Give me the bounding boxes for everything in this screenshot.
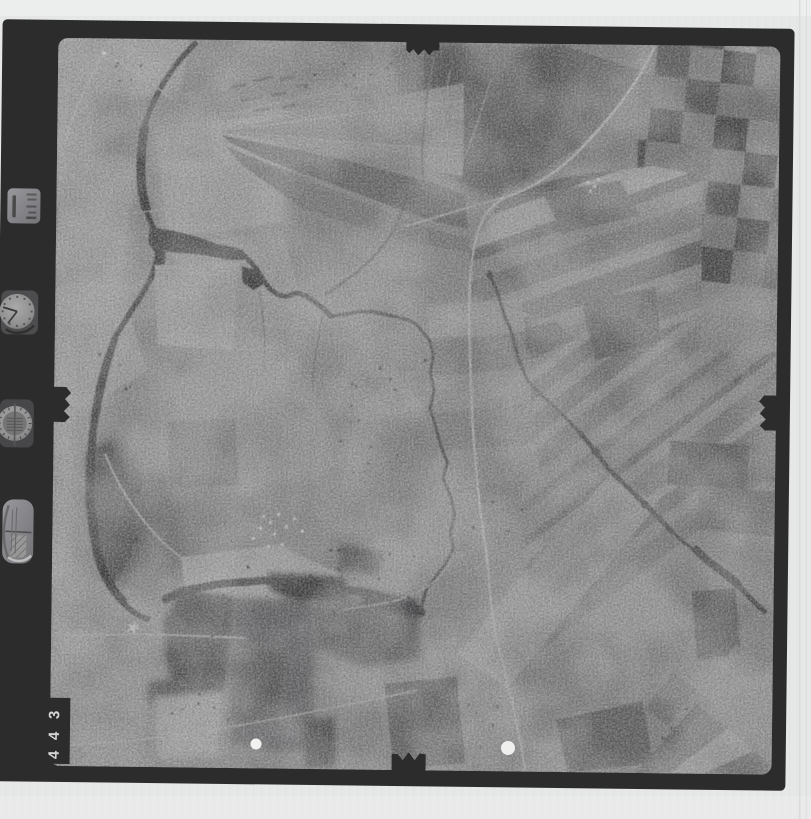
svg-text:4: 4 bbox=[46, 731, 63, 740]
svg-text:4: 4 bbox=[46, 750, 63, 759]
svg-text:3: 3 bbox=[46, 711, 63, 720]
